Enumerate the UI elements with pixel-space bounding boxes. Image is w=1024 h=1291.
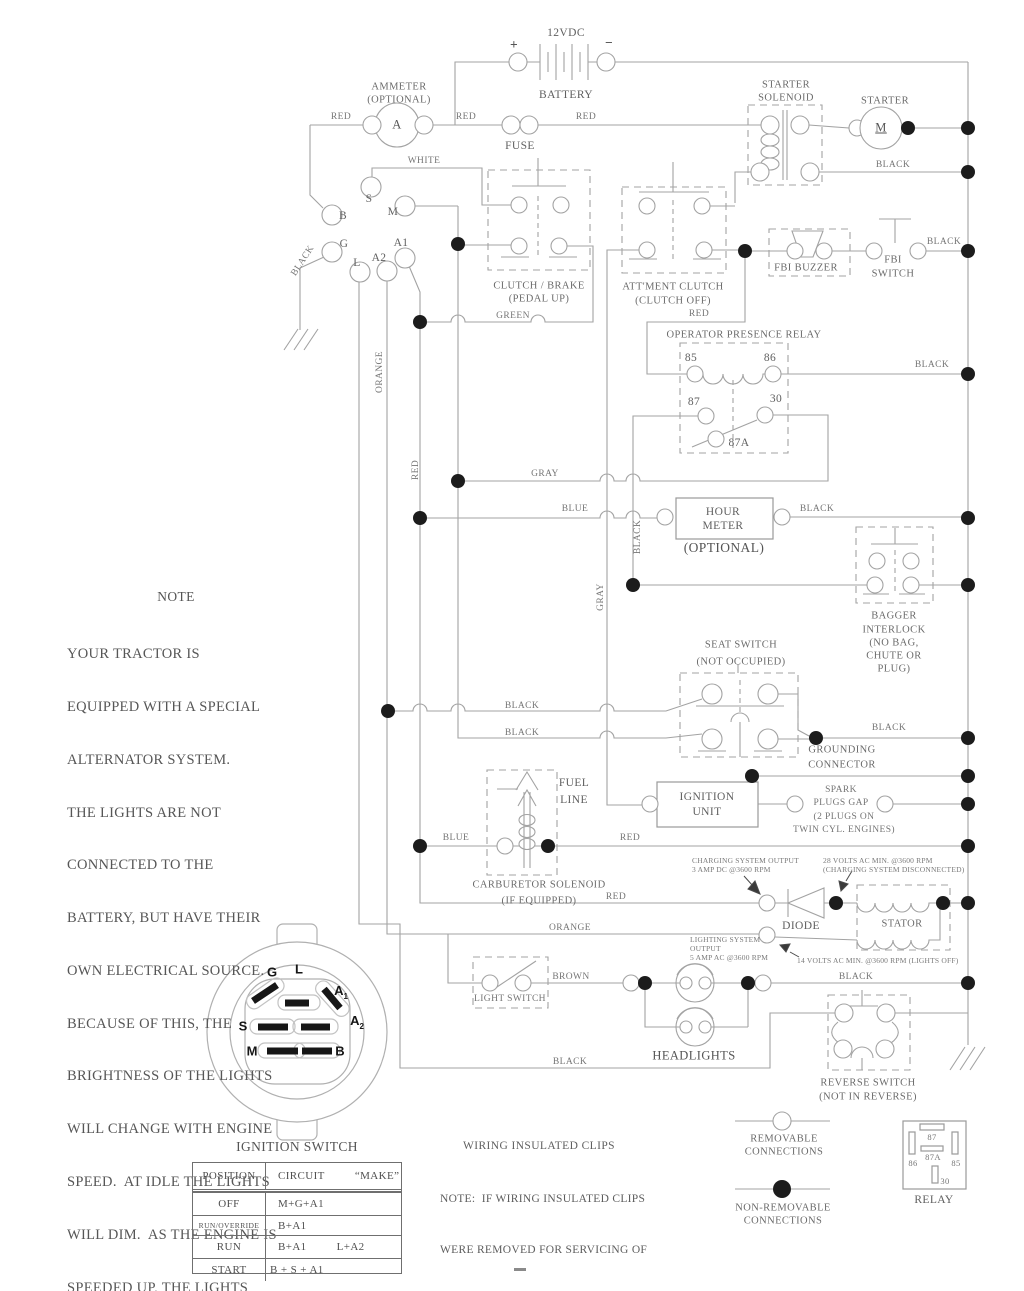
note-line: WILL CHANGE WITH ENGINE	[67, 1121, 307, 1139]
clutch-brake-box	[488, 170, 590, 270]
legend-nonremovable-line2: CONNECTIONS	[744, 1216, 823, 1227]
wire-label-black: BLACK	[872, 723, 906, 733]
bagger-line2: INTERLOCK	[862, 625, 925, 636]
ignition-unit-box	[657, 782, 758, 827]
wire-label-black: BLACK	[915, 360, 949, 370]
attment-clutch-title: ATT'MENT CLUTCH	[622, 282, 723, 293]
connector-pin-b: B	[335, 1044, 344, 1059]
diode-symbol	[788, 888, 824, 918]
connector-pin-l: L	[295, 962, 303, 977]
spark-line4: TWIN CYL. ENGINES)	[793, 825, 895, 835]
make-table-row-runoverride: RUN/OVERRIDE B+A1	[193, 1215, 401, 1235]
key-terminal-b: B	[339, 210, 347, 222]
wire-label-red: RED	[620, 833, 640, 843]
relay-pin-85: 85	[685, 352, 697, 364]
wire-label-gray: GRAY	[596, 583, 606, 611]
stator-label: STATOR	[881, 919, 922, 930]
wire-label-gray: GRAY	[531, 469, 559, 479]
note-line: BATTERY, BUT HAVE THEIR	[67, 910, 307, 928]
spark-line1: SPARK	[825, 785, 857, 795]
connector-pin-a1-sub: 1	[343, 992, 347, 1001]
wire-label-black: BLACK	[505, 701, 539, 711]
make-table: POSITION CIRCUIT “MAKE” OFF M+G+A1 RUN/O…	[192, 1162, 402, 1274]
relay-pin-87: 87	[688, 396, 700, 408]
note-line: SPEEDED UP, THE LIGHTS	[67, 1280, 307, 1291]
battery-cell-short-lines	[548, 52, 580, 72]
lighting-output-text: LIGHTING SYSTEM OUTPUT 5 AMP AC @3600 RP…	[690, 935, 768, 962]
wire-label-blue: BLUE	[443, 833, 469, 843]
make-table-row-run: RUN B+A1 L+A2	[193, 1235, 401, 1258]
relay-legend-86: 86	[908, 1158, 917, 1168]
make-row-position: RUN/OVERRIDE	[193, 1216, 266, 1235]
light-switch-title: LIGHT SWITCH	[474, 994, 546, 1004]
relay-legend-87: 87	[927, 1132, 936, 1142]
note-line: THE LIGHTS ARE NOT	[67, 805, 307, 823]
battery-minus: −	[605, 35, 613, 51]
attment-clutch-subtitle: (CLUTCH OFF)	[635, 296, 711, 307]
ignition-unit-line2: UNIT	[692, 806, 721, 818]
attment-clutch-box	[622, 187, 726, 273]
diode-label: DIODE	[782, 920, 820, 932]
wire-label-black: BLACK	[800, 504, 834, 514]
legend-removable-symbol	[773, 1112, 791, 1130]
solenoid-coil-loop	[761, 146, 779, 158]
clutch-brake-subtitle: (PEDAL UP)	[509, 294, 569, 305]
connector-pin-a2-letter: A	[350, 1013, 359, 1028]
relay-slot-85	[952, 1132, 958, 1154]
bagger-line3: (NO BAG,	[869, 638, 918, 649]
solenoid-coil-loop	[761, 134, 779, 146]
hour-meter-subtitle: (OPTIONAL)	[684, 540, 765, 556]
wire-label-orange: ORANGE	[375, 351, 385, 393]
lighting-output-line3: 5 AMP AC @3600 RPM	[690, 953, 768, 962]
starter-solenoid-title1: STARTER	[762, 80, 810, 91]
clutch-brake-title: CLUTCH / BRAKE	[493, 281, 584, 292]
ammeter-subtitle: (OPTIONAL)	[367, 95, 431, 106]
fbi-switch-title1: FBI	[884, 255, 902, 266]
make-row-circuit: B+A1	[278, 1220, 307, 1232]
charging-output-line2: 3 AMP DC @3600 RPM	[692, 865, 799, 874]
lighting-output-line2: OUTPUT	[690, 944, 768, 953]
fuse-label: FUSE	[505, 140, 535, 152]
carburetor-solenoid-box	[487, 770, 557, 875]
starter-title: STARTER	[861, 96, 909, 107]
make-table-header: POSITION CIRCUIT “MAKE”	[193, 1163, 401, 1192]
hour-meter-box	[676, 498, 773, 539]
fuel-line2: LINE	[560, 794, 588, 806]
wire-label-black: BLACK	[553, 1057, 587, 1067]
carb-subtitle: (IF EQUIPPED)	[502, 896, 577, 907]
ignition-unit-line1: IGNITION	[680, 791, 735, 803]
key-terminal-a2: A2	[372, 252, 387, 264]
make-row-circuit: B+A1	[278, 1241, 307, 1253]
wire-label-blue: BLUE	[562, 504, 588, 514]
connector-pin-a2-sub: 2	[359, 1022, 363, 1031]
connector-pin-g: G	[267, 965, 277, 980]
clips-note-text: NOTE: IF WIRING INSULATED CLIPS WERE REM…	[440, 1157, 663, 1291]
carb-title: CARBURETOR SOLENOID	[472, 880, 605, 891]
wire-label-red: RED	[456, 112, 476, 122]
carb-coil-loop	[519, 827, 535, 838]
key-terminal-l: L	[353, 257, 360, 269]
lighting-note-text: 14 VOLTS AC MIN. @3600 RPM (LIGHTS OFF)	[797, 956, 958, 965]
charging-note-line2: (CHARGING SYSTEM DISCONNECTED)	[823, 865, 964, 874]
relay-slot-87a	[921, 1146, 943, 1151]
ammeter-title: AMMETER	[371, 82, 426, 93]
ammeter-letter: A	[392, 118, 401, 133]
relay-legend-30: 30	[940, 1176, 949, 1186]
make-row-position: OFF	[193, 1193, 266, 1215]
note-line: YOUR TRACTOR IS	[67, 646, 307, 664]
headlights-title: HEADLIGHTS	[652, 1049, 735, 1064]
key-terminal-a1: A1	[394, 237, 409, 249]
reverse-switch-subtitle: (NOT IN REVERSE)	[819, 1092, 917, 1103]
relay-pin-86: 86	[764, 352, 776, 364]
wire-label-orange: ORANGE	[549, 923, 591, 933]
starter-solenoid-title2: SOLENOID	[758, 93, 814, 104]
connector-pin-a2: A2	[350, 1013, 364, 1031]
make-row-position: RUN	[193, 1236, 266, 1258]
bagger-line5: PLUG)	[878, 664, 911, 675]
lighting-output-line1: LIGHTING SYSTEM	[690, 935, 768, 944]
relay-pin-30: 30	[770, 393, 782, 405]
reverse-switch-title: REVERSE SWITCH	[820, 1078, 915, 1089]
make-table-header-position: POSITION	[193, 1163, 266, 1189]
clips-line: WERE REMOVED FOR SERVICING OF	[440, 1242, 663, 1259]
wire-label-red: RED	[576, 112, 596, 122]
wire-label-black: BLACK	[839, 972, 873, 982]
wire-label-red: RED	[689, 309, 709, 319]
make-table-header-circuit: CIRCUIT “MAKE”	[266, 1163, 401, 1189]
charging-output-text: CHARGING SYSTEM OUTPUT 3 AMP DC @3600 RP…	[692, 856, 799, 874]
make-row-circuit: B + S + A1	[270, 1264, 324, 1276]
page-mark	[514, 1268, 526, 1271]
wire-label-red: RED	[331, 112, 351, 122]
spark-line2: PLUGS GAP	[813, 798, 868, 808]
headlamp-arcs	[677, 964, 713, 1019]
starter-letter: M	[875, 121, 887, 136]
connector-pin-a1-letter: A	[334, 983, 343, 998]
connector-pin-s: S	[239, 1019, 248, 1034]
fbi-switch-title2: SWITCH	[872, 269, 915, 280]
make-table-header-circuit-label: CIRCUIT	[278, 1170, 325, 1182]
connector-caption: IGNITION SWITCH	[236, 1139, 358, 1155]
make-table-row-off: OFF M+G+A1	[193, 1192, 401, 1215]
make-row-circuit: M+G+A1	[278, 1198, 324, 1210]
note-line: EQUIPPED WITH A SPECIAL	[67, 699, 307, 717]
charging-note-text: 28 VOLTS AC MIN. @3600 RPM (CHARGING SYS…	[823, 856, 964, 874]
carb-coil-loop	[519, 839, 535, 850]
bagger-line1: BAGGER	[871, 611, 917, 622]
removable-connections	[322, 53, 926, 1130]
seat-switch-subtitle: (NOT OCCUPIED)	[696, 657, 785, 668]
legend-non-removable-symbol	[773, 1180, 791, 1198]
switch-centerlines	[538, 196, 895, 712]
hour-meter-title2: METER	[703, 520, 744, 532]
key-terminal-s: S	[366, 193, 373, 205]
wire-label-red: RED	[606, 892, 626, 902]
spark-line3: (2 PLUGS ON	[814, 812, 875, 822]
key-terminal-g: G	[340, 238, 349, 250]
key-terminal-m: M	[388, 206, 399, 218]
note-title: NOTE	[157, 589, 195, 605]
wire-label-black: BLACK	[927, 237, 961, 247]
charging-note-line1: 28 VOLTS AC MIN. @3600 RPM	[823, 856, 964, 865]
battery-plus: +	[510, 37, 518, 53]
note-line: BRIGHTNESS OF THE LIGHTS	[67, 1068, 307, 1086]
wire-label-black: BLACK	[505, 728, 539, 738]
wire-label-black: BLACK	[633, 520, 643, 554]
presence-relay-title: OPERATOR PRESENCE RELAY	[666, 330, 821, 341]
relay-legend-87a: 87A	[925, 1152, 941, 1162]
note-line: ALTERNATOR SYSTEM.	[67, 752, 307, 770]
relay-slot-87	[920, 1124, 944, 1130]
seat-switch-title: SEAT SWITCH	[705, 640, 777, 651]
legend-removable-line2: CONNECTIONS	[745, 1147, 824, 1158]
wire-label-white: WHITE	[408, 156, 441, 166]
make-table-row-start: START B + S + A1	[193, 1258, 401, 1281]
wire-label-red: RED	[411, 460, 421, 480]
note-line: BECAUSE OF THIS, THE	[67, 1016, 307, 1034]
seat-switch-box	[680, 673, 798, 757]
legend-removable-line1: REMOVABLE	[750, 1134, 818, 1145]
grounding-line1: GROUNDING	[808, 745, 875, 756]
wire-label-black: BLACK	[876, 160, 910, 170]
clips-line: NOTE: IF WIRING INSULATED CLIPS	[440, 1191, 663, 1208]
battery-label: BATTERY	[539, 89, 593, 101]
relay-legend-85: 85	[951, 1158, 960, 1168]
hour-meter-title1: HOUR	[706, 506, 740, 518]
wiring-diagram-page: 12VDC + − BATTERY AMMETER (OPTIONAL) A F…	[0, 0, 1024, 1291]
fuel-line1: FUEL	[559, 777, 589, 789]
carb-coil-loop	[519, 815, 535, 826]
bagger-line4: CHUTE OR	[866, 651, 921, 662]
connector-pin-a1: A1	[334, 983, 348, 1001]
connector-pin-m: M	[247, 1044, 258, 1059]
note-line: CONNECTED TO THE	[67, 857, 307, 875]
charging-output-line1: CHARGING SYSTEM OUTPUT	[692, 856, 799, 865]
grounding-line2: CONNECTOR	[808, 760, 876, 771]
fbi-buzzer-title: FBI BUZZER	[774, 263, 838, 274]
make-row-circuit-2: L+A2	[337, 1241, 365, 1253]
relay-pin-87a: 87A	[728, 437, 749, 449]
make-table-header-make-label: “MAKE”	[355, 1170, 400, 1182]
wire-label-green: GREEN	[496, 311, 530, 321]
relay-slot-86	[909, 1132, 915, 1154]
make-row-position: START	[193, 1259, 266, 1281]
battery-voltage: 12VDC	[547, 27, 585, 39]
legend-nonremovable-line1: NON-REMOVABLE	[735, 1203, 830, 1214]
relay-legend-label: RELAY	[914, 1194, 953, 1206]
relay-slot-30	[932, 1166, 938, 1183]
clips-title: WIRING INSULATED CLIPS	[463, 1140, 615, 1152]
solid-boxes	[657, 498, 966, 1189]
wire-label-brown: BROWN	[552, 972, 589, 982]
